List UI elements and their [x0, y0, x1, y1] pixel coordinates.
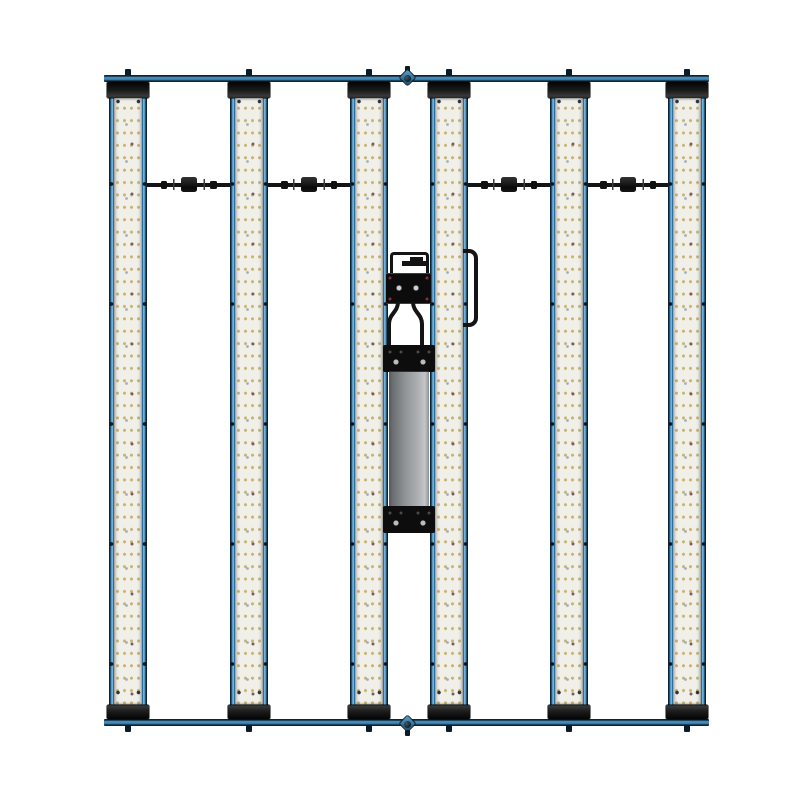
led-board — [435, 98, 463, 705]
hanger-bolt-icon — [404, 75, 411, 82]
driver-wire-stub — [402, 261, 428, 266]
mount-bolt-bottom-icon — [246, 725, 252, 732]
led-bar — [109, 82, 147, 719]
mount-bolt-top-icon — [366, 69, 372, 76]
bar-end-cap-top — [548, 82, 590, 98]
waterproof-connector-plug — [288, 179, 330, 190]
waterproof-connector-plug — [168, 179, 210, 190]
bar-end-cap-top — [428, 82, 470, 98]
mount-bolt-top-icon — [246, 69, 252, 76]
led-bar — [430, 82, 468, 719]
cable-ring-icon — [531, 181, 538, 190]
inter-bar-cable — [268, 183, 350, 187]
bar-end-cap-bottom — [348, 705, 390, 719]
led-board — [235, 98, 263, 705]
waterproof-connector-plug — [607, 179, 649, 190]
wiring-junction-box — [386, 273, 431, 304]
bar-end-cap-top — [228, 82, 270, 98]
driver-power-supply — [389, 371, 429, 507]
hanger-bolt-icon — [404, 721, 411, 728]
product-image — [0, 0, 800, 800]
led-bar — [550, 82, 588, 719]
cable-ring-icon — [481, 181, 488, 190]
bar-end-cap-bottom — [548, 705, 590, 719]
cable-ring-icon — [600, 181, 607, 190]
led-board — [555, 98, 583, 705]
mount-bolt-bottom-icon — [125, 725, 131, 732]
driver-bracket-bottom — [383, 506, 435, 533]
mount-bolt-bottom-icon — [566, 725, 572, 732]
mount-bolt-top-icon — [446, 69, 452, 76]
waterproof-connector-plug — [488, 179, 530, 190]
bar-end-cap-top — [666, 82, 708, 98]
cable-ring-icon — [210, 181, 217, 190]
mount-bolt-bottom-icon — [684, 725, 690, 732]
led-bar — [350, 82, 388, 719]
bar-end-cap-bottom — [107, 705, 149, 719]
led-bar — [668, 82, 706, 719]
bar-end-cap-bottom — [428, 705, 470, 719]
carry-handle — [463, 249, 478, 327]
mount-bolt-top-icon — [125, 69, 131, 76]
cable-ring-icon — [331, 181, 338, 190]
driver-bracket-top — [383, 345, 435, 372]
inter-bar-cable — [147, 183, 230, 187]
bar-end-cap-top — [348, 82, 390, 98]
cable-ring-icon — [650, 181, 657, 190]
hanger-bracket-bottom — [399, 712, 415, 736]
cable-ring-icon — [281, 181, 288, 190]
led-board — [114, 98, 142, 705]
mount-bolt-top-icon — [684, 69, 690, 76]
bar-end-cap-top — [107, 82, 149, 98]
mount-bolt-bottom-icon — [446, 725, 452, 732]
cable-ring-icon — [161, 181, 168, 190]
bar-end-cap-bottom — [666, 705, 708, 719]
inter-bar-cable — [468, 183, 550, 187]
driver-cables — [380, 302, 440, 348]
bar-end-cap-bottom — [228, 705, 270, 719]
led-bar — [230, 82, 268, 719]
hanger-pin-icon — [405, 730, 410, 736]
mount-bolt-top-icon — [566, 69, 572, 76]
led-board — [673, 98, 701, 705]
mount-bolt-bottom-icon — [366, 725, 372, 732]
led-board — [355, 98, 383, 705]
inter-bar-cable — [588, 183, 668, 187]
hanger-bracket-top — [399, 66, 415, 90]
